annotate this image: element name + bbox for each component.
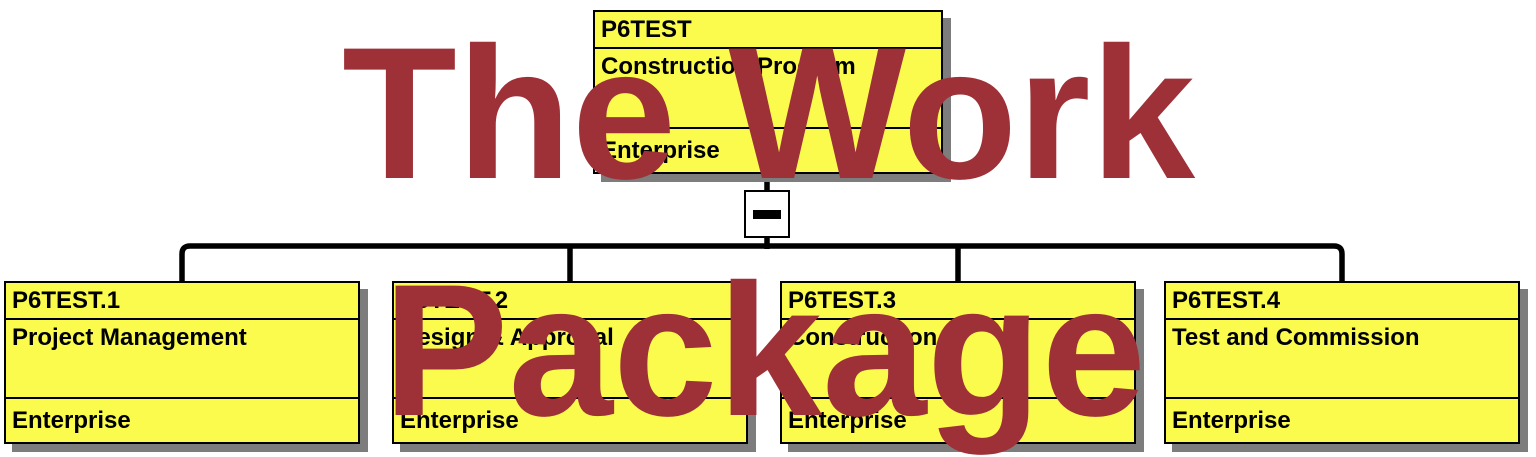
wbs-node-responsible: Enterprise (6, 399, 358, 442)
wbs-node-name: Construction Program (595, 49, 941, 129)
wbs-node-child-1[interactable]: P6TEST.1 Project Management Enterprise (4, 281, 360, 444)
wbs-node-child-2[interactable]: P6TEST.2 Design & Approval Enterprise (392, 281, 748, 444)
wbs-node-name: Construction (782, 320, 1134, 399)
wbs-node-name: Project Management (6, 320, 358, 399)
wbs-node-code: P6TEST.3 (782, 283, 1134, 320)
wbs-node-code: P6TEST.2 (394, 283, 746, 320)
wbs-chart-canvas: P6TEST Construction Program Enterprise P… (0, 0, 1536, 457)
minus-icon (753, 210, 781, 219)
wbs-node-child-4[interactable]: P6TEST.4 Test and Commission Enterprise (1164, 281, 1520, 444)
wbs-node-name: Test and Commission (1166, 320, 1518, 399)
wbs-node-code: P6TEST.4 (1166, 283, 1518, 320)
wbs-node-child-3[interactable]: P6TEST.3 Construction Enterprise (780, 281, 1136, 444)
collapse-button[interactable] (744, 190, 790, 238)
wbs-node-responsible: Enterprise (782, 399, 1134, 442)
wbs-node-code: P6TEST (595, 12, 941, 49)
wbs-node-responsible: Enterprise (595, 129, 941, 172)
wbs-node-responsible: Enterprise (394, 399, 746, 442)
wbs-node-name: Design & Approval (394, 320, 746, 399)
child-rail-line (182, 246, 1342, 281)
wbs-node-root[interactable]: P6TEST Construction Program Enterprise (593, 10, 943, 174)
wbs-node-code: P6TEST.1 (6, 283, 358, 320)
wbs-node-responsible: Enterprise (1166, 399, 1518, 442)
